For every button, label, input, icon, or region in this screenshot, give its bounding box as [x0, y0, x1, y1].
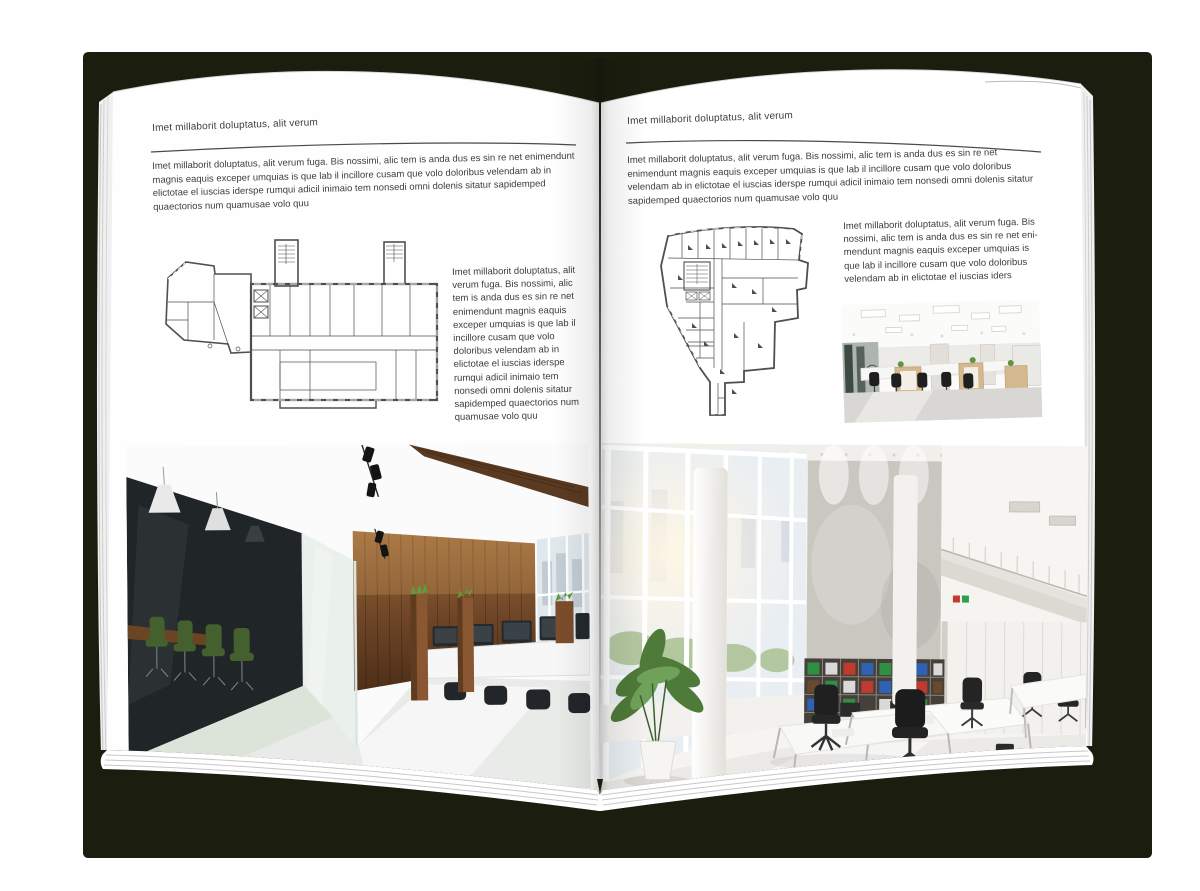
book-mockup-spread: Imet millaborit doluptatus, alit verum I… — [0, 0, 1200, 891]
book-bottom-edge-overlay — [0, 0, 1200, 891]
